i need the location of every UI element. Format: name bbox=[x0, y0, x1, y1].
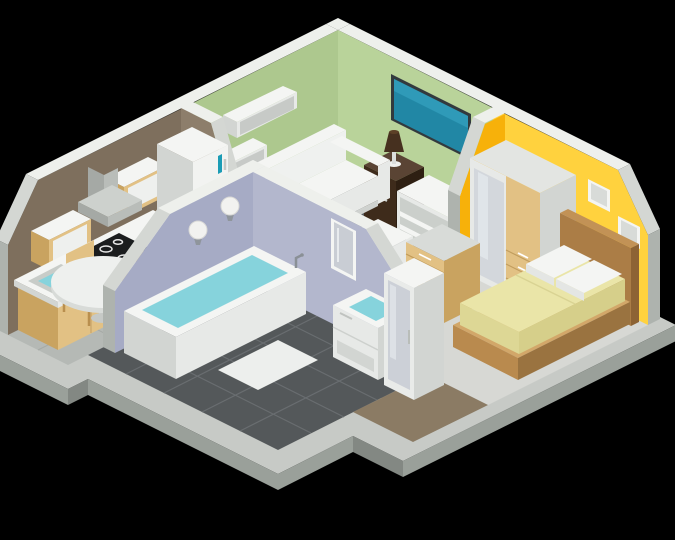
apartment-illustration bbox=[0, 0, 675, 540]
tall-mirror-cabinet bbox=[384, 258, 444, 400]
fridge-display bbox=[218, 154, 222, 174]
isometric-apartment-svg bbox=[0, 0, 675, 540]
